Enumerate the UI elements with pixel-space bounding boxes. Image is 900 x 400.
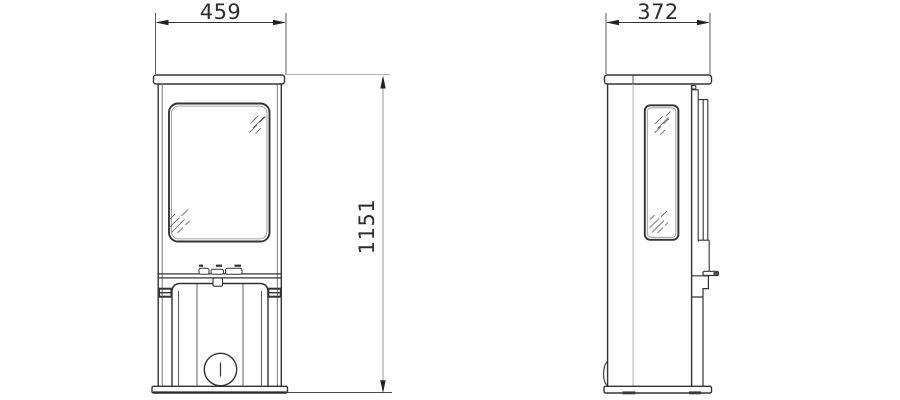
front-width-dimension-label: 459	[200, 0, 242, 24]
arrow-left-icon	[156, 20, 169, 25]
arrow-right-icon	[697, 20, 710, 25]
dimension-front-width: 459	[156, 0, 287, 74]
side-glass-window	[645, 105, 679, 240]
drawing-canvas: 459 372 1151	[0, 0, 900, 400]
side-depth-dimension-label: 372	[637, 0, 679, 24]
front-handle-tabs	[199, 268, 242, 274]
side-top-plate	[605, 75, 712, 84]
stove-front-view	[152, 75, 288, 393]
arrow-left-icon	[606, 20, 619, 25]
arrow-up-icon	[380, 76, 385, 89]
door-handle-end	[714, 272, 718, 275]
side-foot-front	[689, 391, 701, 394]
arrow-down-icon	[380, 380, 385, 393]
dimension-side-depth: 372	[606, 0, 710, 74]
front-door-latch	[213, 278, 223, 286]
front-top-plate	[154, 75, 285, 84]
front-glass-door	[169, 104, 270, 242]
dimension-height: 1151	[285, 75, 392, 394]
height-dimension-label: 1151	[355, 199, 379, 254]
side-foot-rear	[623, 391, 636, 394]
stove-side-view	[604, 75, 719, 394]
stove-dimension-drawing: 459 372 1151	[0, 0, 900, 400]
side-door-profile	[692, 90, 710, 271]
arrow-right-icon	[273, 20, 286, 25]
side-lower-door-profile	[692, 276, 709, 387]
